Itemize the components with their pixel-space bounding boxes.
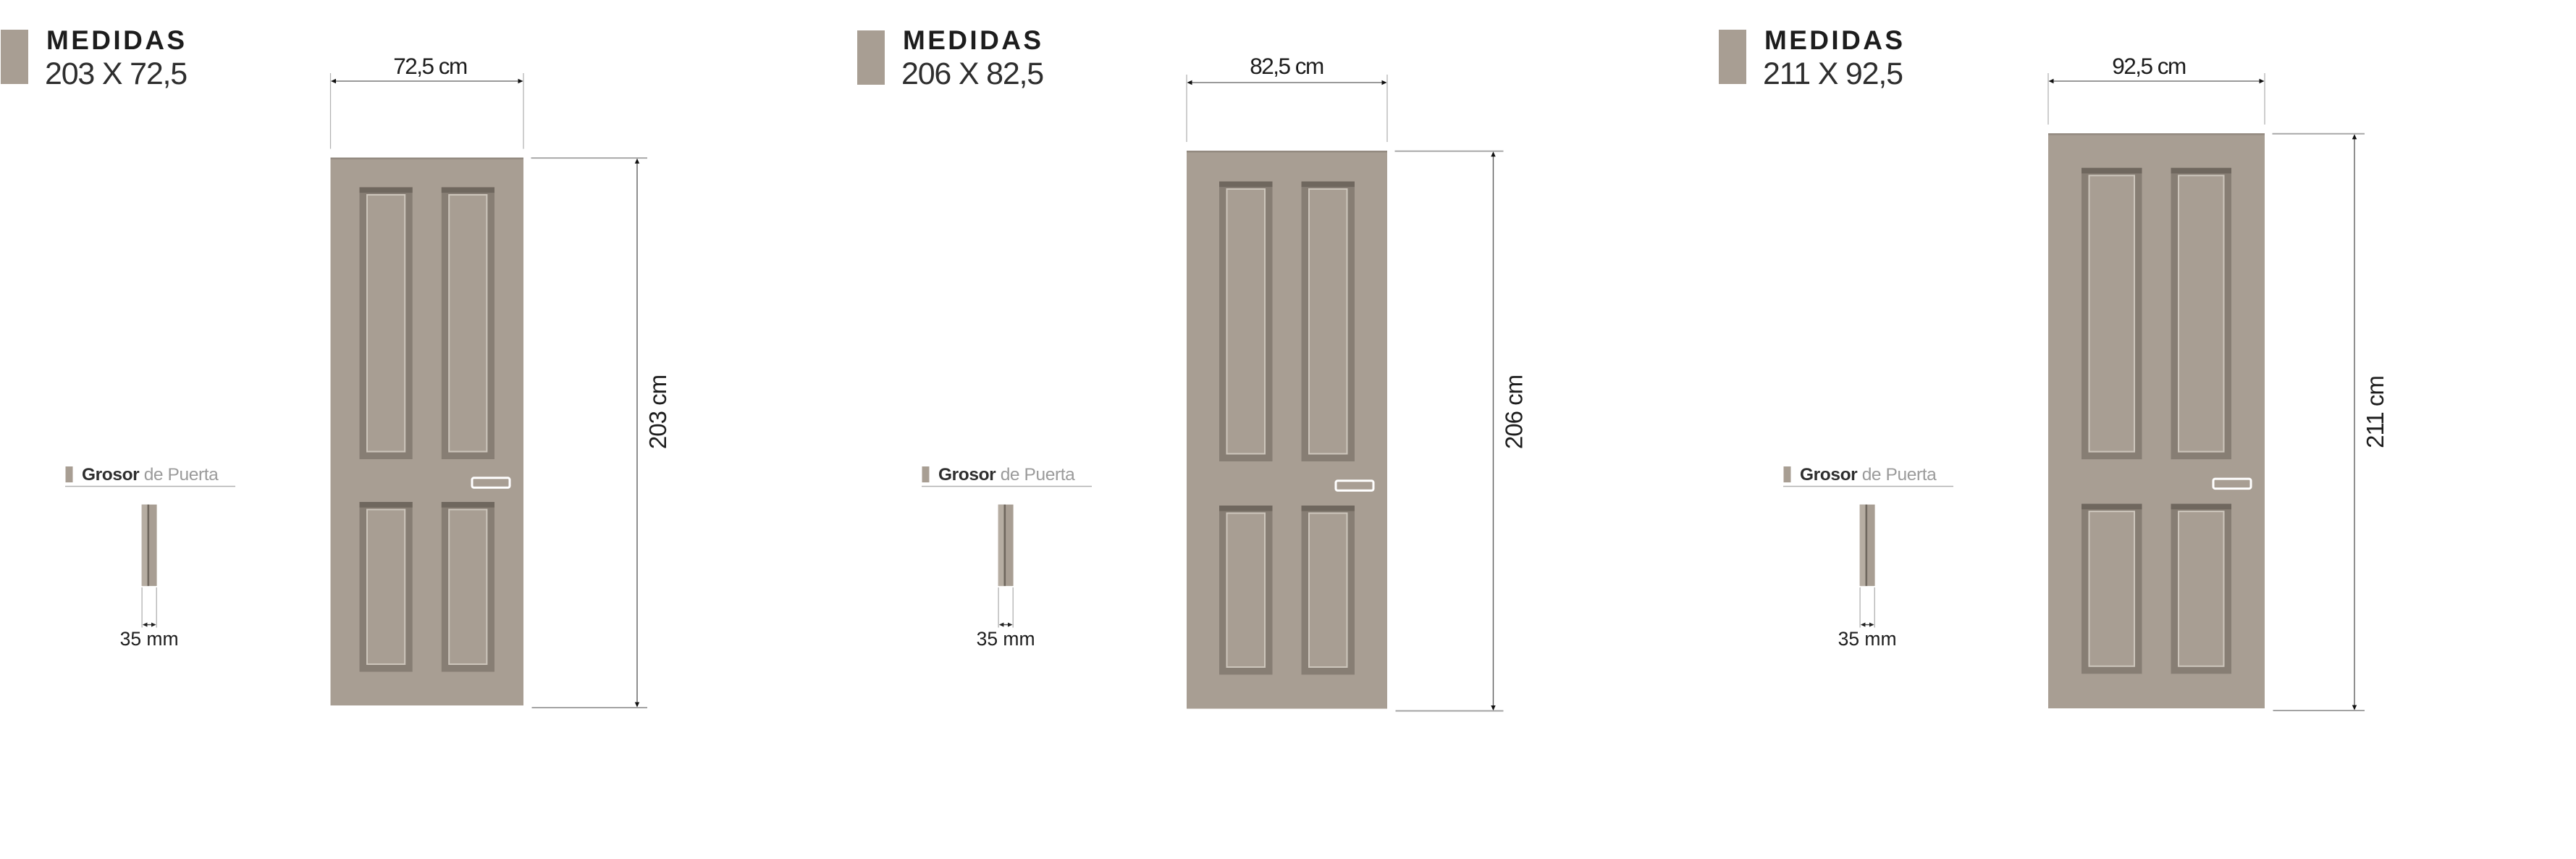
svg-text:35 mm: 35 mm [977, 628, 1035, 650]
svg-text:MEDIDAS: MEDIDAS [46, 25, 187, 55]
svg-text:206 cm: 206 cm [1501, 375, 1528, 449]
svg-text:Grosor de Puerta: Grosor de Puerta [82, 465, 219, 485]
svg-text:72,5 cm: 72,5 cm [393, 53, 467, 79]
svg-text:206 X 82,5: 206 X 82,5 [901, 56, 1043, 91]
svg-text:211 cm: 211 cm [2362, 376, 2388, 448]
svg-text:203 X 72,5: 203 X 72,5 [45, 56, 187, 91]
svg-text:MEDIDAS: MEDIDAS [1764, 25, 1905, 55]
svg-text:Grosor de Puerta: Grosor de Puerta [1800, 465, 1937, 485]
svg-text:203 cm: 203 cm [644, 375, 671, 449]
svg-text:35 mm: 35 mm [1838, 628, 1897, 650]
svg-text:35 mm: 35 mm [120, 628, 179, 650]
svg-text:82,5 cm: 82,5 cm [1250, 53, 1323, 79]
svg-text:MEDIDAS: MEDIDAS [903, 25, 1043, 55]
svg-text:211 X 92,5: 211 X 92,5 [1763, 56, 1903, 91]
svg-text:92,5 cm: 92,5 cm [2112, 53, 2186, 79]
svg-text:Grosor de Puerta: Grosor de Puerta [938, 465, 1075, 485]
